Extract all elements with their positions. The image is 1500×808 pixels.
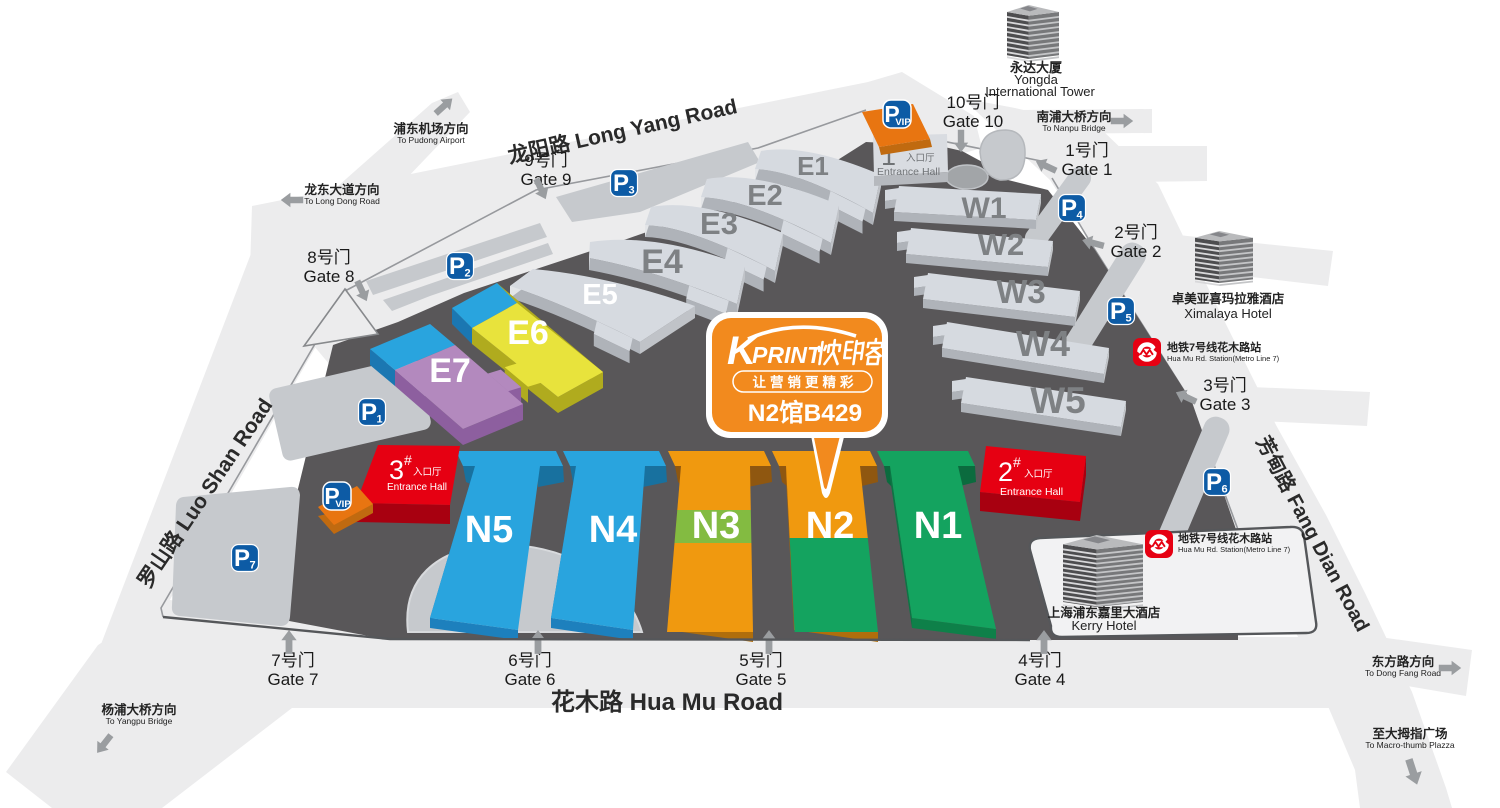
svg-text:E6: E6	[507, 314, 549, 352]
svg-text:Gate 3: Gate 3	[1199, 395, 1250, 414]
svg-text:N2馆B429: N2馆B429	[748, 398, 862, 427]
svg-text:3号门: 3号门	[1203, 376, 1246, 395]
svg-text:E2: E2	[747, 180, 782, 212]
svg-text:E3: E3	[700, 206, 738, 241]
svg-text:To Nanpu Bridge: To Nanpu Bridge	[1042, 123, 1106, 133]
svg-text:W3: W3	[996, 273, 1046, 310]
svg-text:3: 3	[389, 455, 404, 485]
svg-text:VIP: VIP	[335, 499, 351, 510]
svg-text:7: 7	[249, 560, 255, 572]
svg-text:P: P	[361, 399, 377, 426]
svg-text:6: 6	[1221, 484, 1227, 496]
svg-text:N4: N4	[589, 509, 638, 551]
svg-text:4: 4	[1076, 210, 1083, 222]
svg-text:Gate 2: Gate 2	[1110, 242, 1161, 261]
svg-text:至大拇指广场: 至大拇指广场	[1372, 726, 1447, 741]
svg-text:#: #	[404, 452, 412, 468]
svg-text:To Macro-thumb Plazza: To Macro-thumb Plazza	[1365, 740, 1455, 750]
svg-text:Hua Mu Rd. Station(Metro Line: Hua Mu Rd. Station(Metro Line 7)	[1167, 354, 1280, 363]
svg-text:Gate 9: Gate 9	[520, 170, 571, 189]
svg-text:龙东大道方向: 龙东大道方向	[303, 182, 379, 197]
svg-text:3: 3	[628, 185, 634, 197]
svg-text:W2: W2	[978, 227, 1025, 262]
svg-text:Gate 7: Gate 7	[267, 670, 318, 689]
svg-text:W5: W5	[1030, 380, 1086, 421]
svg-text:VIP: VIP	[895, 117, 911, 128]
svg-text:浦东机场方向: 浦东机场方向	[393, 121, 468, 136]
svg-text:International Tower: International Tower	[985, 84, 1095, 99]
svg-text:东方路方向: 东方路方向	[1372, 654, 1435, 669]
svg-text:N3: N3	[692, 505, 741, 547]
svg-text:P: P	[1110, 298, 1126, 325]
svg-text:E5: E5	[582, 279, 617, 311]
svg-text:To Long Dong Road: To Long Dong Road	[304, 196, 380, 206]
svg-text:4号门: 4号门	[1018, 651, 1061, 670]
svg-text:5号门: 5号门	[739, 651, 782, 670]
svg-text:Gate 5: Gate 5	[735, 670, 786, 689]
svg-text:Entrance Hall: Entrance Hall	[877, 166, 940, 178]
svg-text:入口厅: 入口厅	[906, 153, 935, 164]
svg-text:Entrance Hall: Entrance Hall	[387, 482, 447, 493]
svg-text:P: P	[613, 170, 629, 197]
svg-text:2: 2	[998, 457, 1013, 487]
svg-text:Gate 6: Gate 6	[504, 670, 555, 689]
svg-text:Hua Mu Rd. Station(Metro Line: Hua Mu Rd. Station(Metro Line 7)	[1178, 545, 1291, 554]
svg-text:Gate 10: Gate 10	[943, 112, 1004, 131]
svg-text:7号门: 7号门	[271, 651, 314, 670]
svg-text:杨浦大桥方向: 杨浦大桥方向	[101, 702, 176, 717]
svg-text:入口厅: 入口厅	[1024, 469, 1053, 480]
svg-text:P: P	[234, 545, 250, 572]
svg-text:P: P	[449, 253, 465, 280]
svg-text:9号门: 9号门	[524, 151, 567, 170]
svg-text:PRINT: PRINT	[752, 342, 823, 368]
svg-text:南浦大桥方向: 南浦大桥方向	[1036, 109, 1111, 124]
svg-text:地铁7号线花木路站: 地铁7号线花木路站	[1178, 531, 1272, 545]
svg-text:To Pudong Airport: To Pudong Airport	[397, 135, 465, 145]
svg-text:5: 5	[1125, 313, 1131, 325]
svg-text:卓美亚喜玛拉雅酒店: 卓美亚喜玛拉雅酒店	[1172, 291, 1285, 306]
svg-text:W1: W1	[962, 192, 1007, 225]
svg-text:花木路 Hua Mu Road: 花木路 Hua Mu Road	[551, 688, 783, 716]
svg-text:E4: E4	[641, 243, 683, 281]
svg-text:Entrance Hall: Entrance Hall	[1000, 486, 1063, 498]
svg-text:Gate 8: Gate 8	[303, 267, 354, 286]
svg-text:入口厅: 入口厅	[413, 467, 442, 478]
svg-text:让营销更精彩: 让营销更精彩	[753, 374, 858, 390]
svg-text:Kerry Hotel: Kerry Hotel	[1071, 618, 1136, 633]
svg-text:1号门: 1号门	[1065, 141, 1108, 160]
svg-text:P: P	[1061, 195, 1077, 222]
svg-text:N2: N2	[806, 505, 855, 547]
svg-text:N1: N1	[914, 505, 963, 547]
svg-text:N5: N5	[465, 509, 514, 551]
svg-text:1: 1	[376, 414, 382, 426]
svg-text:To Yangpu Bridge: To Yangpu Bridge	[106, 716, 173, 726]
svg-text:E1: E1	[797, 151, 829, 181]
svg-text:2号门: 2号门	[1114, 223, 1157, 242]
svg-text:Ximalaya Hotel: Ximalaya Hotel	[1184, 306, 1272, 321]
svg-text:8号门: 8号门	[307, 248, 350, 267]
svg-text:6号门: 6号门	[508, 651, 551, 670]
svg-text:Gate 4: Gate 4	[1014, 670, 1065, 689]
svg-text:2: 2	[464, 268, 470, 280]
svg-text:#: #	[1013, 454, 1021, 470]
svg-text:P: P	[1206, 469, 1222, 496]
svg-text:E7: E7	[429, 352, 471, 390]
svg-text:To Dong Fang Road: To Dong Fang Road	[1365, 668, 1441, 678]
svg-text:W4: W4	[1016, 323, 1070, 364]
svg-text:地铁7号线花木路站: 地铁7号线花木路站	[1167, 340, 1261, 354]
svg-text:Gate 1: Gate 1	[1061, 160, 1112, 179]
